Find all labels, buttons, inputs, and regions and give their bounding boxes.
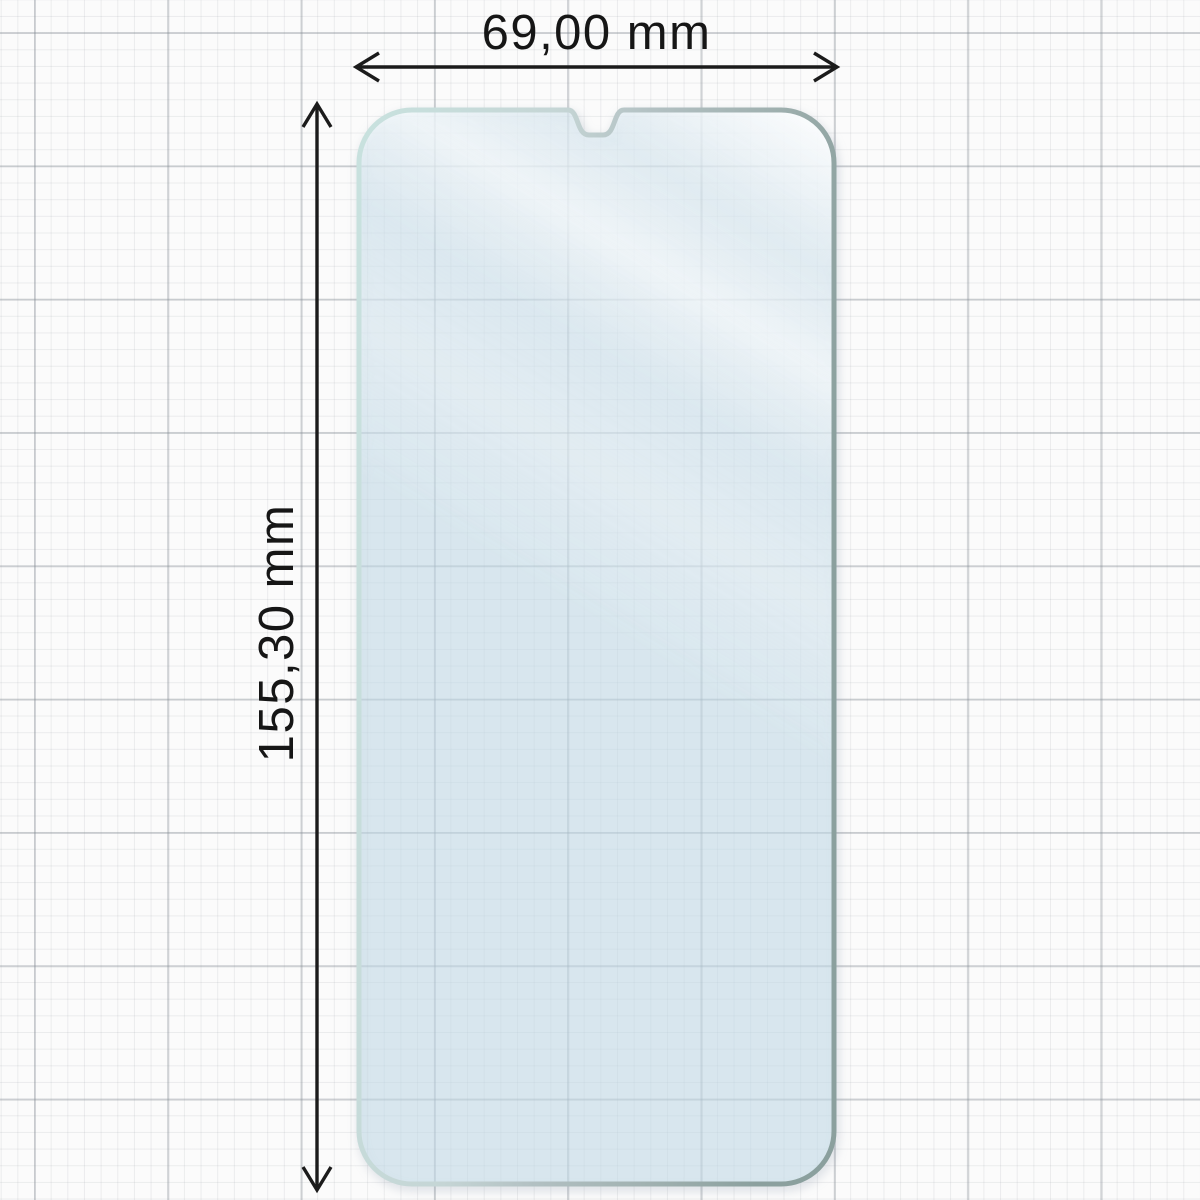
grid-background: 69,00 mm 155,30 mm [0,0,1200,1200]
film-reflection-highlight [359,110,834,1184]
height-dimension-arrow [303,104,331,1190]
height-dimension-label: 155,30 mm [249,504,305,763]
screen-protector-film [356,107,837,1188]
width-dimension-label: 69,00 mm [356,0,837,66]
